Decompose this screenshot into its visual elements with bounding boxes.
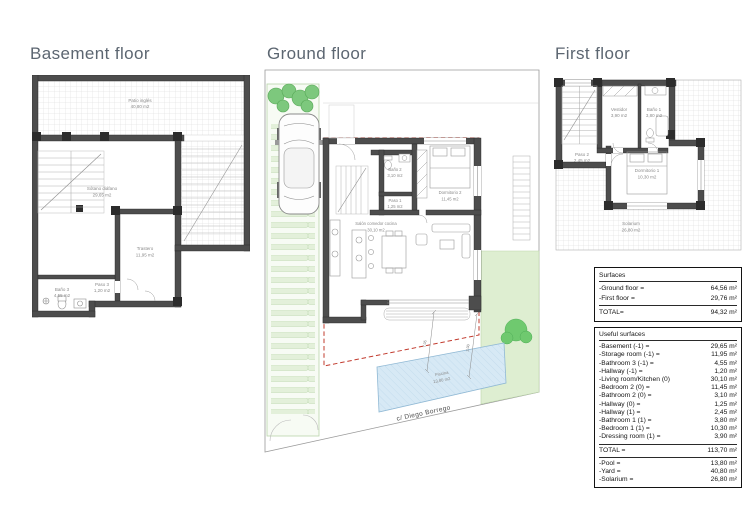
room-area-bano3: 4,55 m2: [54, 293, 71, 298]
row-label: -Pool =: [599, 460, 620, 468]
basement-floor-plan: Patio inglés 40,80 m2 Sótano diáfano 29,…: [32, 75, 250, 321]
room-area-bano2: 3,10 m2: [387, 173, 403, 178]
total-label: TOTAL=: [599, 308, 624, 317]
room-label-vestidor: Vestidor: [611, 107, 628, 112]
row-label: -Hallway (-1) =: [599, 368, 643, 376]
row-value: 3,10 m²: [714, 392, 737, 400]
row-value: 13,80 m²: [711, 460, 737, 468]
row-label: -Bedroom 1 (1) =: [599, 425, 650, 433]
table-row: -Living room/Kitchen (0)30,10 m²: [599, 376, 737, 384]
wardrobe-hatch: [417, 150, 427, 198]
basement-door-gap: [115, 281, 120, 293]
row-label: -Ground floor =: [599, 284, 644, 293]
table-row: -Hallway (-1) =1,20 m²: [599, 368, 737, 376]
room-label-dorm2: Dormitorio 2: [439, 190, 462, 195]
row-label: -Storage room (-1) =: [599, 351, 660, 359]
room-area-dorm2: 11,45 m2: [441, 197, 459, 202]
row-value: 11,95 m²: [711, 351, 737, 359]
room-area-paso1: 1,25 m2: [387, 204, 403, 209]
basement-floor-title: Basement floor: [30, 44, 150, 64]
room-area-dorm1: 10,30 m2: [638, 175, 657, 180]
room-label-paso3: Paso 3: [95, 282, 110, 287]
table-row: -Storage room (-1) =11,95 m²: [599, 351, 737, 359]
table-row: -Dressing room (1) =3,90 m²: [599, 433, 737, 441]
row-value: 11,45 m²: [711, 384, 737, 392]
row-value: 64,56 m²: [711, 284, 737, 293]
table-row: -Bathroom 3 (-1) =4,55 m²: [599, 360, 737, 368]
ground-floor-plan: Piscina 13,80 m2: [264, 68, 541, 460]
first-bed: [627, 152, 667, 194]
table-row: -Hallway (0) =1,25 m²: [599, 401, 737, 409]
row-value: 2,45 m²: [714, 409, 737, 417]
row-label: -Dressing room (1) =: [599, 433, 661, 441]
row-value: 4,55 m²: [714, 360, 737, 368]
first-stairs: [562, 86, 597, 144]
vestidor-closet-hatch: [603, 86, 637, 96]
row-label: -Yard =: [599, 468, 621, 476]
row-label: -First floor =: [599, 294, 635, 303]
first-floor-title: First floor: [555, 44, 630, 64]
row-label: -Hallway (1) =: [599, 409, 640, 417]
room-area-paso3: 1,20 m2: [94, 288, 111, 293]
row-label: -Bedroom 2 (0) =: [599, 384, 650, 392]
row-value: 3,90 m²: [714, 433, 737, 441]
car-icon: [275, 114, 323, 214]
row-value: 1,25 m²: [714, 401, 737, 409]
table-row: -Solarium =26,80 m²: [599, 476, 737, 484]
room-label-bano2: Baño 2: [388, 167, 402, 172]
table-row: -Hallway (1) =2,45 m²: [599, 409, 737, 417]
room-area-paso2: 2,45 m2: [574, 158, 591, 163]
row-value: 3,80 m²: [714, 417, 737, 425]
surfaces-table-title: Surfaces: [599, 271, 737, 282]
basement-door-arcs: [127, 279, 155, 301]
table-row: -Basement (-1) =29,65 m²: [599, 343, 737, 351]
room-label-trastero: Trastero: [137, 246, 154, 251]
total-label: TOTAL =: [599, 447, 625, 455]
table-row: -Yard =40,80 m²: [599, 468, 737, 476]
row-value: 29,76 m²: [711, 294, 737, 303]
room-area-bano1: 3,80 m2: [646, 113, 663, 118]
room-label-sotano: Sótano diáfano: [87, 186, 118, 191]
row-value: 26,80 m²: [711, 476, 737, 484]
table-row: -Bedroom 2 (0) =11,45 m²: [599, 384, 737, 392]
row-label: -Bathroom 1 (1) =: [599, 417, 652, 425]
table-extra-section: -Pool =13,80 m² -Yard =40,80 m² -Solariu…: [599, 457, 737, 485]
room-area-vestidor: 3,90 m2: [611, 113, 628, 118]
basement-stairs: [38, 151, 104, 213]
first-floor-plan: Vestidor 3,90 m2 Baño 1 3,80 m2 Paso 2 2…: [553, 70, 745, 266]
room-label-paso1: Paso 1: [388, 198, 402, 203]
table-row: -Bathroom 2 (0) =3,10 m²: [599, 392, 737, 400]
row-label: -Bathroom 3 (-1) =: [599, 360, 654, 368]
table-row: -Bedroom 1 (1) =10,30 m²: [599, 425, 737, 433]
row-label: -Solarium =: [599, 476, 633, 484]
row-label: -Bathroom 2 (0) =: [599, 392, 652, 400]
row-value: 29,65 m²: [711, 343, 737, 351]
room-area-solarium: 26,80 m2: [622, 228, 641, 233]
room-label-bano3: Baño 3: [55, 287, 70, 292]
useful-surfaces-table: Useful surfaces -Basement (-1) =29,65 m²…: [594, 327, 742, 488]
room-label-patio: Patio inglés: [128, 98, 152, 103]
surfaces-table: Surfaces -Ground floor = 64,56 m² -First…: [594, 267, 742, 322]
row-label: -Basement (-1) =: [599, 343, 649, 351]
row-label: -Living room/Kitchen (0): [599, 376, 670, 384]
room-area-patio: 40,80 m2: [131, 104, 150, 109]
terrace-deck: [384, 308, 470, 320]
room-area-sotano: 29,65 m2: [93, 193, 112, 198]
room-label-dorm1: Dormitorio 1: [635, 168, 660, 173]
row-label: -Hallway (0) =: [599, 401, 640, 409]
table-row: -Ground floor = 64,56 m²: [599, 284, 737, 293]
ground-floor-title: Ground floor: [267, 44, 366, 64]
row-value: 10,30 m²: [711, 425, 737, 433]
room-label-salon: Salón comedor cocina: [355, 221, 397, 226]
row-value: 40,80 m²: [711, 468, 737, 476]
room-label-bano1: Baño 1: [647, 107, 662, 112]
total-value: 94,32 m²: [711, 308, 737, 317]
room-label-solarium: Solarium: [622, 221, 640, 226]
table-total-row: TOTAL= 94,32 m²: [599, 305, 737, 317]
table-row: -Bathroom 1 (1) =3,80 m²: [599, 417, 737, 425]
room-label-paso2: Paso 2: [575, 152, 590, 157]
exterior-stair: [513, 156, 530, 240]
table-total-row: TOTAL = 113,70 m²: [599, 444, 737, 455]
table-row: -First floor = 29,76 m²: [599, 294, 737, 303]
table-row: -Pool =13,80 m²: [599, 460, 737, 468]
row-value: 1,20 m²: [714, 368, 737, 376]
room-area-salon: 30,10 m2: [367, 228, 385, 233]
total-value: 113,70 m²: [707, 447, 737, 455]
row-value: 30,10 m²: [711, 376, 737, 384]
room-area-trastero: 11,95 m2: [136, 253, 155, 258]
useful-table-title: Useful surfaces: [599, 331, 737, 341]
floor-plan-sheet: Basement floor Ground floor First floor: [0, 0, 756, 528]
